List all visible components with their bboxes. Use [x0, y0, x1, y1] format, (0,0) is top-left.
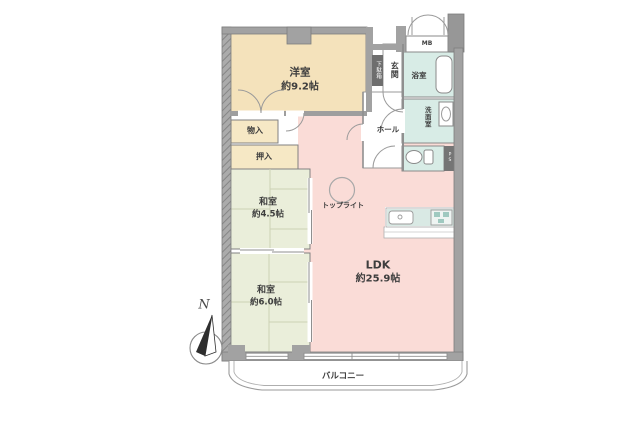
floor-plan-drawing — [0, 0, 640, 439]
balcony-label: バルコニー — [322, 371, 364, 382]
washroom-label: 洗面室 — [423, 107, 431, 128]
entrance-door-arcs — [408, 15, 448, 35]
shoe-cabinet-label: 下駄箱 — [374, 61, 381, 79]
entrance-label: 玄関 — [389, 62, 399, 79]
kitchen-sink-icon — [389, 211, 413, 224]
japanese-room-small-area: 約4.5帖 — [252, 209, 284, 220]
compass-north-label: N — [198, 298, 209, 315]
japanese-room-small-name: 和室 — [252, 198, 284, 210]
bathroom-label: 浴室 — [412, 71, 427, 81]
japanese-room-small-label: 和室 約4.5帖 — [252, 198, 284, 221]
compass-icon — [190, 315, 222, 364]
closet-label: 押入 — [256, 152, 272, 162]
japanese-room-large-name: 和室 — [250, 286, 282, 298]
ldk-area: 約25.9帖 — [356, 273, 401, 286]
hall-label: ホール — [377, 125, 400, 135]
western-room-area: 約9.2帖 — [281, 80, 319, 93]
wall-notch — [287, 27, 311, 44]
japanese-room-large-area: 約6.0帖 — [250, 297, 282, 308]
storage-label: 物入 — [247, 126, 263, 136]
meter-box-label: MB — [422, 40, 433, 48]
kitchen-counter — [384, 208, 457, 238]
floor-plan: 洋室 約9.2帖 物入 押入 和室 約4.5帖 和室 約6.0帖 LDK 約25… — [0, 0, 640, 439]
western-room-label: 洋室 約9.2帖 — [281, 67, 319, 94]
toilet-tank-icon — [424, 150, 433, 164]
toilet-bowl-icon — [406, 151, 422, 164]
japanese-room-large-label: 和室 約6.0帖 — [250, 286, 282, 309]
windows — [246, 353, 447, 359]
pipe-space-label: PS — [447, 153, 453, 164]
skylight-label: トップライト — [322, 201, 364, 210]
western-room-name: 洋室 — [281, 67, 319, 81]
bathtub-icon — [436, 56, 452, 93]
ldk-name: LDK — [356, 258, 401, 272]
ldk-label: LDK 約25.9帖 — [356, 258, 401, 285]
